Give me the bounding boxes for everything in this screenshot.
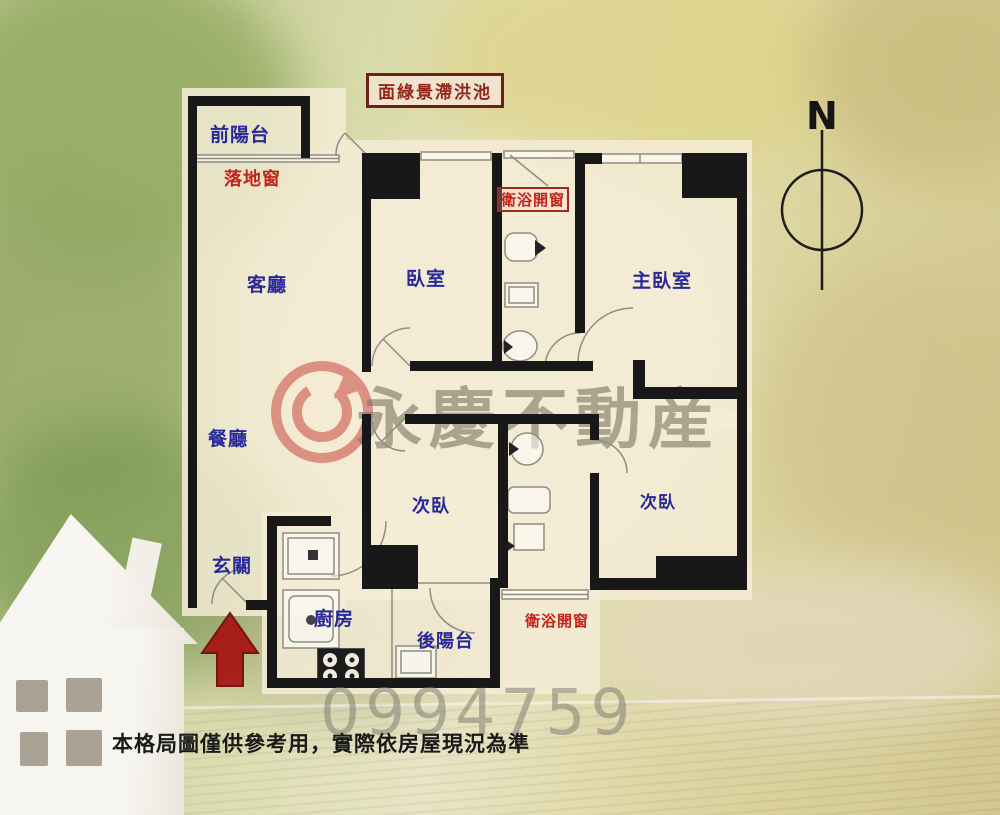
disclaimer-text: 本格局圖僅供參考用，實際依房屋現況為準 — [112, 728, 530, 758]
floor-plan-screenshot: 永慶不動産 — [0, 0, 1000, 815]
